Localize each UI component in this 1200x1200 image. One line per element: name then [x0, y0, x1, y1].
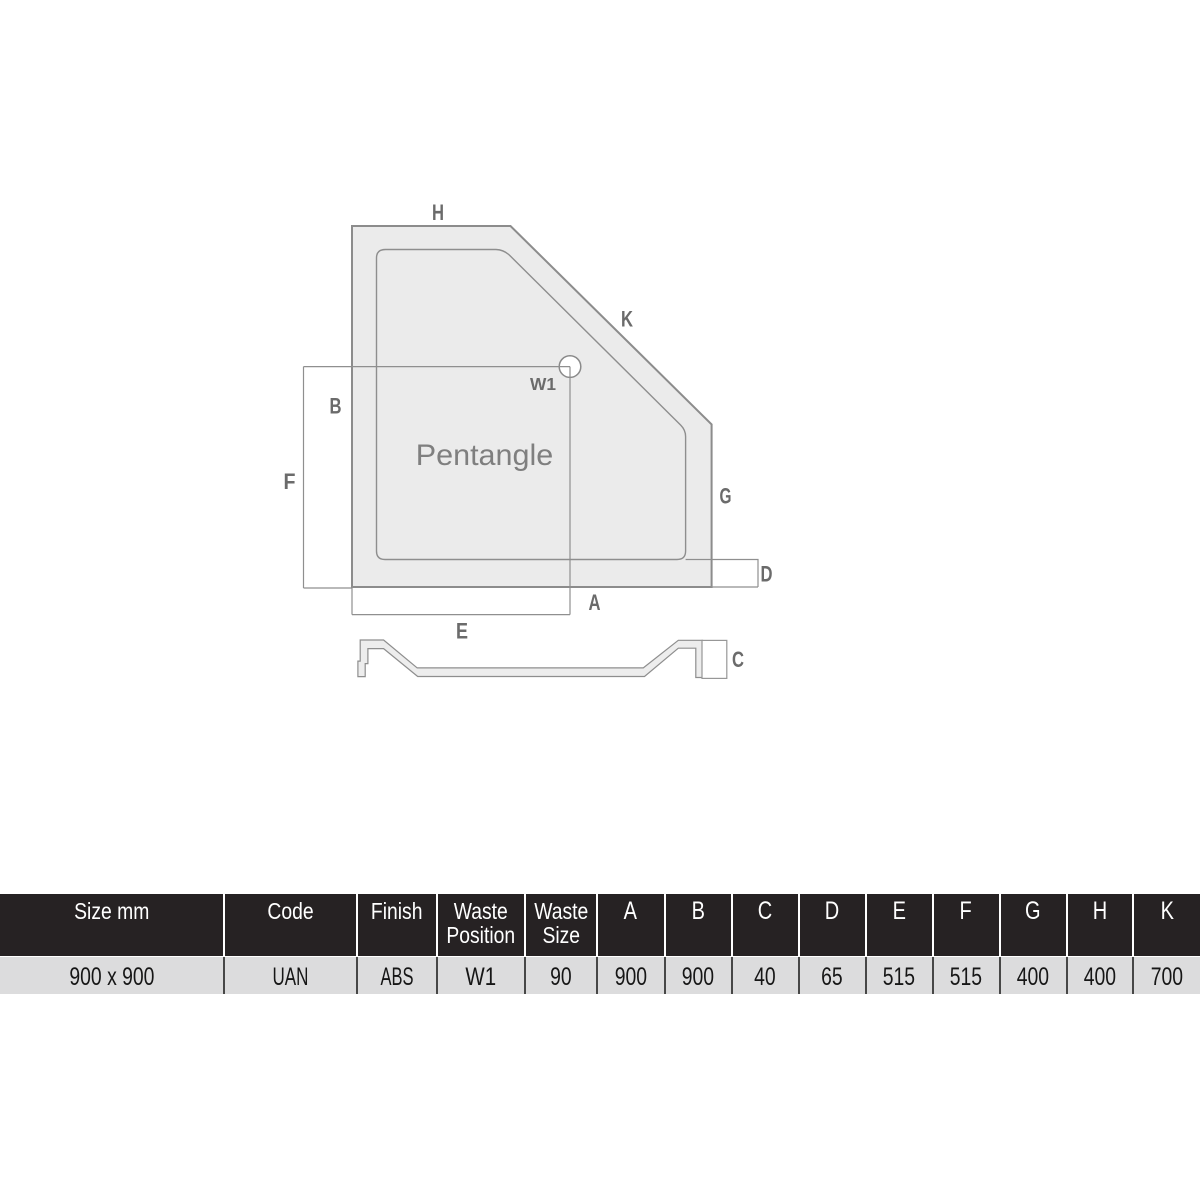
- svg-text:A: A: [589, 590, 601, 615]
- svg-text:Pentangle: Pentangle: [416, 439, 554, 472]
- svg-text:K: K: [621, 306, 633, 331]
- svg-text:C: C: [732, 647, 744, 672]
- svg-text:B: B: [330, 393, 342, 418]
- svg-text:D: D: [761, 561, 773, 586]
- svg-text:W1: W1: [530, 374, 556, 394]
- svg-text:G: G: [720, 483, 732, 508]
- svg-text:E: E: [456, 618, 468, 643]
- svg-text:H: H: [432, 200, 444, 225]
- svg-text:F: F: [284, 469, 296, 494]
